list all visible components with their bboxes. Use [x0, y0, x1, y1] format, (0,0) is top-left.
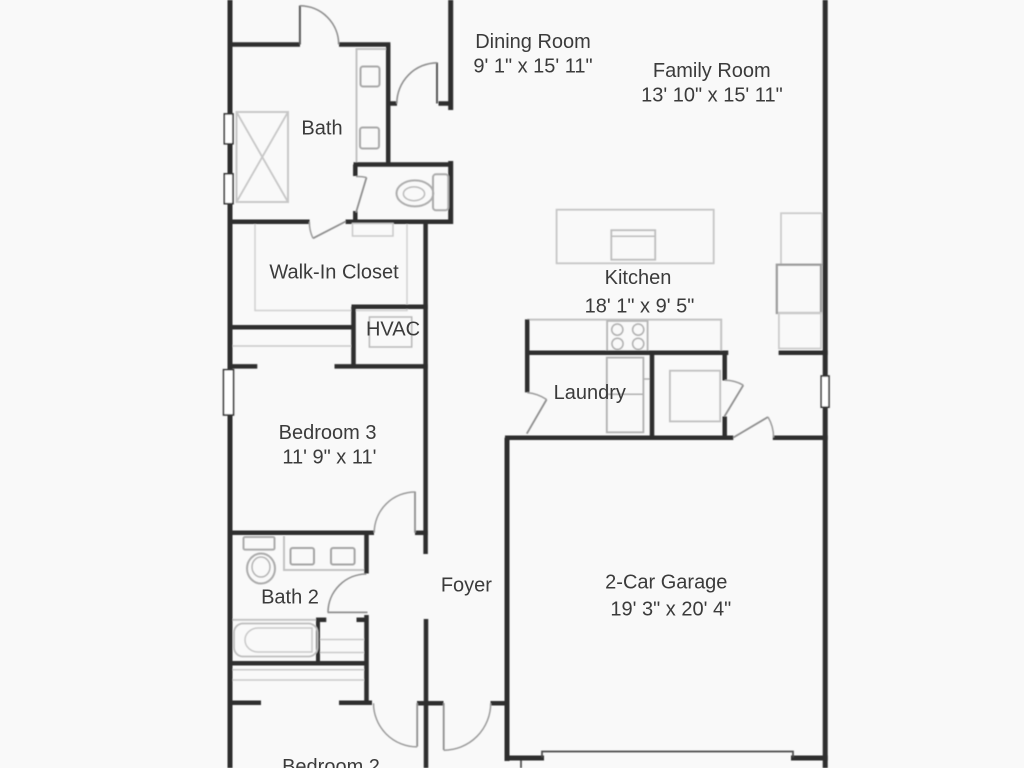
svg-text:13' 10" x 15' 11": 13' 10" x 15' 11" [641, 84, 783, 106]
svg-text:Bath: Bath [301, 117, 342, 139]
svg-text:Kitchen: Kitchen [605, 267, 672, 289]
svg-text:Foyer: Foyer [441, 575, 492, 597]
svg-text:9' 1" x 15' 11": 9' 1" x 15' 11" [473, 56, 592, 78]
svg-text:HVAC: HVAC [366, 319, 420, 341]
svg-text:Bedroom 2: Bedroom 2 [282, 756, 380, 768]
svg-text:19' 3" x 20' 4": 19' 3" x 20' 4" [610, 599, 731, 621]
svg-text:18' 1" x 9' 5": 18' 1" x 9' 5" [585, 296, 695, 318]
svg-text:Bath 2: Bath 2 [261, 587, 319, 609]
svg-text:Laundry: Laundry [554, 382, 626, 404]
svg-text:Bedroom 3: Bedroom 3 [279, 422, 377, 444]
svg-text:11' 9" x 11': 11' 9" x 11' [282, 447, 376, 469]
svg-text:Walk-In Closet: Walk-In Closet [269, 262, 399, 284]
svg-text:Family Room: Family Room [653, 60, 771, 82]
svg-text:2-Car Garage: 2-Car Garage [605, 572, 727, 594]
svg-text:Dining Room: Dining Room [475, 31, 591, 53]
